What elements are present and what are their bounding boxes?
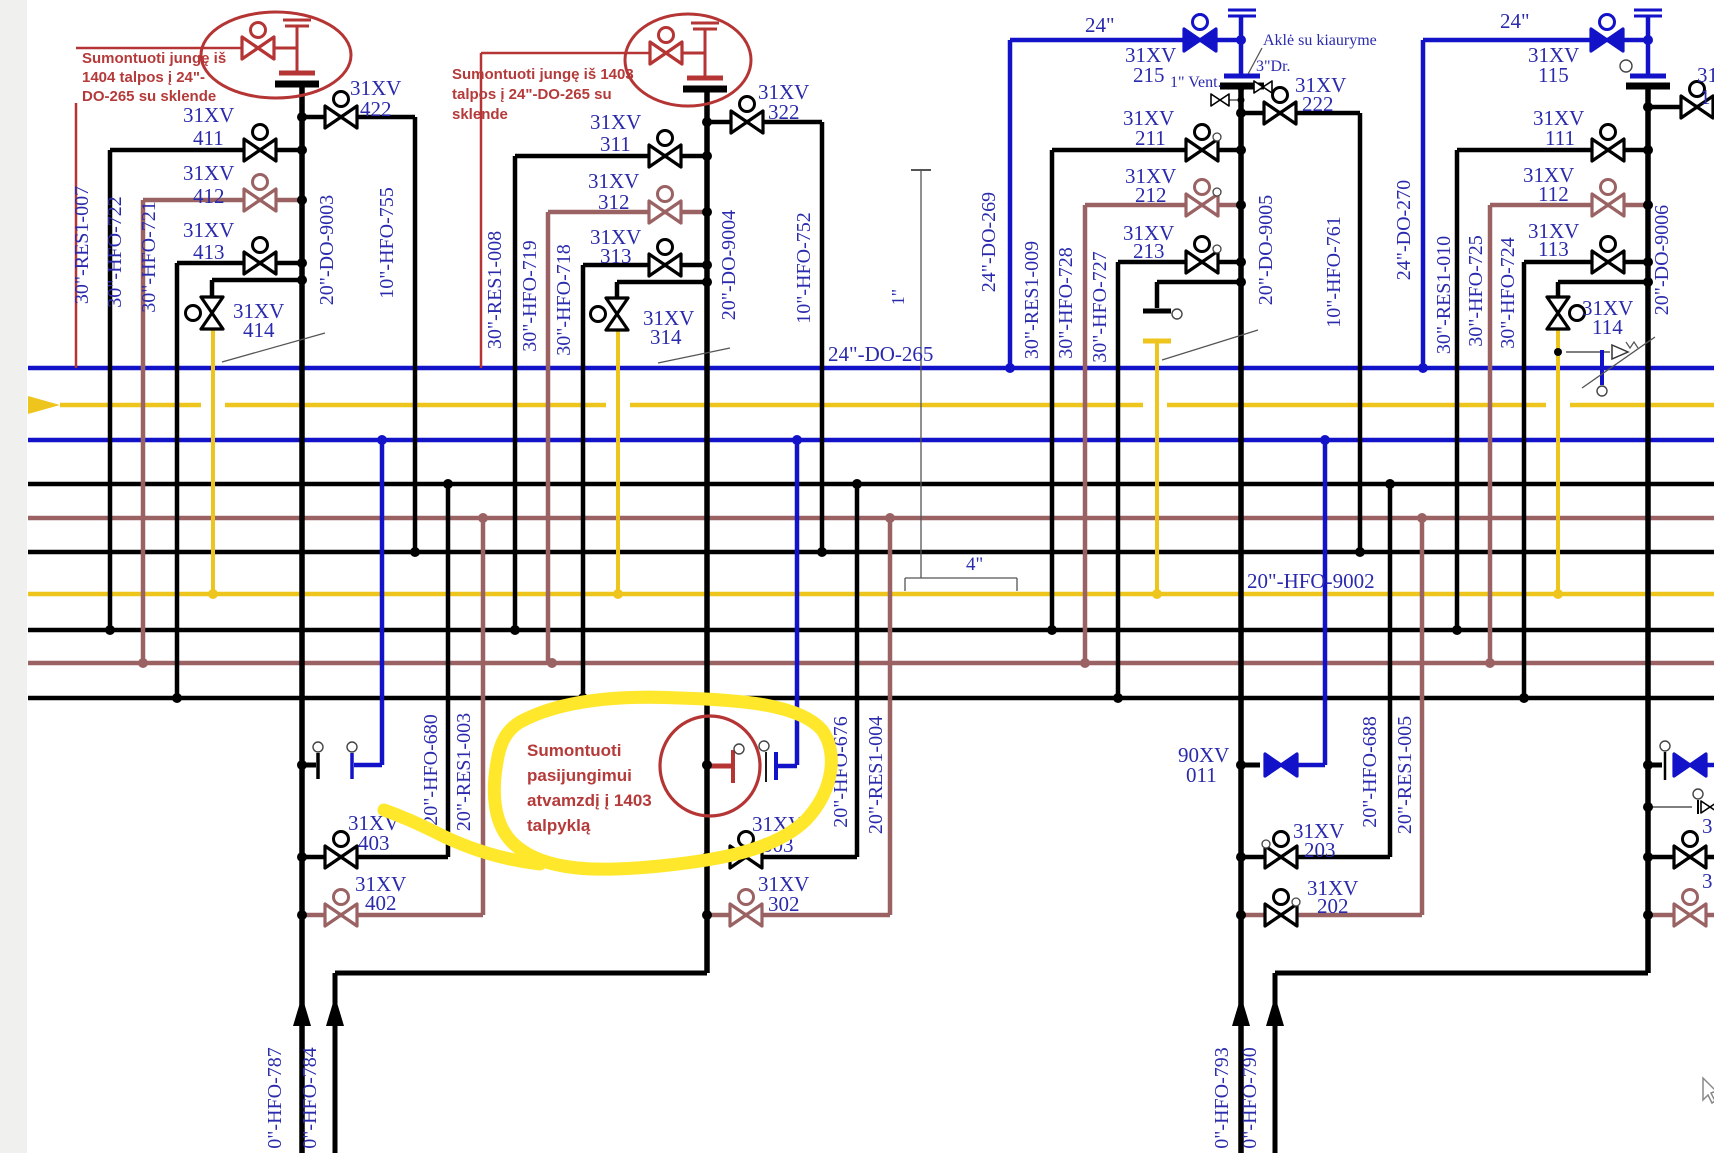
pipe-label-vertical: 0"-HFO-793	[1211, 1047, 1233, 1149]
pipe-junction-dot	[702, 260, 712, 270]
valve-icon	[1211, 94, 1229, 106]
valve-icon	[1592, 139, 1624, 161]
pid-drawing-canvas: 24"-DO-26520"-HFO-900224"24"4"31XV41131X…	[0, 0, 1714, 1153]
vent-circle-icon	[1597, 386, 1607, 396]
valve-icon	[1186, 251, 1218, 273]
pipe-junction-dot	[1236, 200, 1246, 210]
valve-icon	[325, 106, 357, 128]
red-note-text: DO-265 su sklende	[82, 88, 216, 105]
pipe-label-vertical: 30"-RES1-009	[1021, 241, 1043, 359]
red-note-text: talpyklą	[527, 816, 591, 835]
valve-actuator-icon	[1195, 180, 1210, 195]
pipe-junction-dot	[852, 479, 862, 489]
pipe-junction-dot	[1554, 348, 1562, 356]
valve-icon	[650, 42, 682, 64]
pipe-label: 212	[1135, 183, 1167, 207]
pipe-junction-dot	[1113, 693, 1123, 703]
valve-actuator-icon	[334, 832, 349, 847]
pipe-junction-dot	[1047, 625, 1057, 635]
red-note-text: pasijungimui	[527, 766, 632, 785]
vent-circle-icon	[313, 742, 323, 752]
valve-icon	[649, 201, 681, 223]
pipe-junction-dot	[443, 479, 453, 489]
valve-actuator-icon	[1601, 125, 1616, 140]
pipe-label: 413	[193, 240, 225, 264]
red-note-text: Sumontuoti jungę iš	[82, 50, 226, 67]
pipe-label-vertical: 0"-HFO-790	[1239, 1047, 1261, 1149]
pipe-junction-dot	[1417, 513, 1427, 523]
vent-circle-icon	[1660, 741, 1670, 751]
pipe-label-vertical: 30"-HFO-722	[104, 196, 126, 308]
annotation-label: 3"Dr.	[1256, 58, 1291, 75]
limit-switch-icon	[1213, 245, 1221, 253]
valve-actuator-icon	[253, 125, 268, 140]
pipe-junction-dot	[1236, 910, 1246, 920]
pipe-junction-dot	[297, 760, 307, 770]
pipe-junction-dot	[297, 112, 307, 122]
valve-icon	[649, 145, 681, 167]
pipe-junction-dot	[1553, 589, 1563, 599]
pipe-junction-dot	[1238, 97, 1245, 104]
pipe-label-vertical: 10"-HFO-755	[376, 187, 398, 299]
pipe-label: 113	[1538, 237, 1569, 261]
pipe-label: 31XV	[183, 161, 234, 185]
valve-icon	[244, 189, 276, 211]
pipe-junction-dot	[613, 589, 623, 599]
pipe-label-vertical: 0"-HFO-784	[299, 1047, 321, 1149]
pipe-label: 213	[1133, 239, 1165, 263]
pipe-label: 1	[1700, 85, 1711, 109]
pipe-label-vertical: 30"-HFO-719	[519, 240, 541, 352]
pipe-junction-dot	[1519, 693, 1529, 703]
pipe-label: 422	[360, 97, 392, 121]
pipe-label: 202	[1317, 894, 1349, 918]
pipe-junction-dot	[702, 151, 712, 161]
flow-arrow-icon	[326, 996, 344, 1026]
pipe-junction-dot	[1005, 363, 1015, 373]
valve-icon	[1265, 846, 1297, 868]
valve-actuator-icon	[1601, 180, 1616, 195]
valve-icon	[1674, 904, 1706, 926]
flow-arrow-icon	[1266, 996, 1284, 1026]
limit-switch-icon	[1213, 188, 1221, 196]
pipe-junction-dot	[1236, 35, 1246, 45]
valve-actuator-icon	[740, 97, 755, 112]
valve-actuator-icon	[658, 131, 673, 146]
pipe-junction-dot	[410, 547, 420, 557]
annotation-label: 1" Vent.	[1170, 74, 1222, 91]
pipe-label: 24"-DO-265	[828, 342, 933, 366]
red-note-text: 1404 talpos į 24"-	[82, 69, 205, 86]
valve-actuator-icon	[1683, 890, 1698, 905]
pipe-label: 114	[1592, 315, 1623, 339]
pipe-junction-dot	[885, 513, 895, 523]
valve-icon	[325, 904, 357, 926]
pipe-junction-dot	[105, 625, 115, 635]
red-note-text: atvamzdį į 1403	[527, 791, 652, 810]
vent-circle-icon	[734, 744, 744, 754]
pipe-label-vertical: 20"-HFO-680	[420, 714, 442, 826]
pipe-junction-dot	[138, 658, 148, 668]
valve-actuator-icon	[251, 23, 266, 38]
pipe-junction-dot	[702, 277, 712, 287]
pipe-label: 115	[1538, 63, 1569, 87]
pipe-label-vertical: 20"-RES1-005	[1394, 716, 1416, 834]
pipe-label: 31XV	[1702, 869, 1714, 893]
pipe-label: 322	[768, 100, 800, 124]
pipe-label: 403	[358, 831, 390, 855]
pipe-junction-dot	[1485, 658, 1495, 668]
valve-icon	[730, 904, 762, 926]
valve-icon	[1186, 139, 1218, 161]
pipe-junction-dot	[1236, 852, 1246, 862]
vent-circle-icon	[759, 741, 769, 751]
valve-icon	[1674, 754, 1706, 776]
pipe-label-vertical: 20"-RES1-003	[453, 713, 475, 831]
valve-actuator-icon	[1600, 15, 1615, 30]
pipe-label-vertical: 20"-RES1-004	[865, 716, 887, 834]
annotation-label: Aklė su kiauryme	[1263, 32, 1377, 49]
pipe-junction-dot	[510, 625, 520, 635]
pipe-junction-dot	[1236, 257, 1246, 267]
pipe-label-vertical: 20"-DO-9004	[718, 210, 740, 320]
pipe-label-vertical: 30"-HFO-724	[1497, 237, 1519, 349]
pipe-label: 412	[193, 184, 225, 208]
pipe-label-vertical: 1"	[888, 289, 908, 305]
pipe-junction-dot	[1236, 108, 1246, 118]
pipe-label: 312	[598, 190, 630, 214]
vent-circle-icon	[1172, 309, 1182, 319]
valve-actuator-icon	[658, 187, 673, 202]
pid-diagram: 24"-DO-26520"-HFO-900224"24"4"31XV41131X…	[0, 0, 1714, 1153]
pipe-junction-dot	[297, 258, 307, 268]
pipe-label: 414	[243, 318, 275, 342]
pipe-junction-dot	[817, 547, 827, 557]
valve-actuator-icon	[1273, 88, 1288, 103]
pipe-junction-dot	[1236, 760, 1246, 770]
pipe-junction-dot	[1643, 852, 1653, 862]
pipe-junction-dot	[297, 852, 307, 862]
flow-arrow-icon	[293, 996, 311, 1026]
valve-icon	[1264, 102, 1296, 124]
pipe-junction-dot	[297, 275, 307, 285]
pipe-junction-dot	[297, 910, 307, 920]
valve-actuator-icon	[186, 306, 201, 321]
pipe-junction-dot	[377, 435, 387, 445]
pipe-junction-dot	[702, 207, 712, 217]
pipe-label-vertical: 20"-DO-9003	[316, 195, 338, 305]
pipe-junction-dot	[172, 693, 182, 703]
valve-actuator-icon	[739, 890, 754, 905]
vent-circle-icon	[347, 742, 357, 752]
pipe-label-vertical: 10"-HFO-761	[1323, 216, 1345, 328]
valve-icon	[1592, 251, 1624, 273]
valve-icon	[1592, 194, 1624, 216]
valve-actuator-icon	[659, 28, 674, 43]
red-note-text: talpos į 24"-DO-265 su	[452, 86, 612, 103]
pipe-junction-dot	[1643, 760, 1653, 770]
valve-actuator-icon	[658, 240, 673, 255]
pipe-label-vertical: 30"-RES1-010	[1433, 236, 1455, 354]
pipe-label: 211	[1135, 126, 1166, 150]
pipe-segment	[658, 348, 730, 363]
pipe-junction-dot	[702, 760, 712, 770]
pipe-label-vertical: 20"-DO-9005	[1255, 195, 1277, 305]
pipe-label-vertical: 24"-DO-270	[1393, 180, 1415, 280]
valve-icon	[1184, 29, 1216, 51]
valve-icon	[325, 846, 357, 868]
pipe-junction-dot	[297, 145, 307, 155]
pipe-label: 215	[1133, 63, 1165, 87]
pipe-label-vertical: 30"-HFO-718	[553, 244, 575, 356]
valve-icon	[242, 37, 274, 59]
pipe-segment	[1582, 337, 1655, 388]
valve-icon	[244, 139, 276, 161]
limit-switch-icon	[1262, 840, 1270, 848]
valve-icon	[1265, 754, 1297, 776]
pipe-junction-dot	[1418, 363, 1428, 373]
pipe-junction-dot	[1385, 479, 1395, 489]
pipe-label-vertical: 30"-HFO-728	[1055, 247, 1077, 359]
pipe-junction-dot	[1152, 589, 1162, 599]
valve-icon	[606, 298, 628, 330]
pipe-label: 203	[1304, 838, 1336, 862]
pipe-label: 112	[1538, 182, 1569, 206]
valve-icon	[1186, 194, 1218, 216]
pipe-label: 4"	[966, 554, 983, 575]
pipe-junction-dot	[1643, 910, 1653, 920]
pipe-junction-dot	[702, 910, 712, 920]
pipe-label-vertical: 10"-HFO-752	[793, 212, 815, 324]
pipe-label: 31XV	[590, 110, 641, 134]
vent-circle-icon	[1693, 789, 1703, 799]
pipe-junction-dot	[1643, 102, 1653, 112]
pipe-junction-dot	[1320, 435, 1330, 445]
pipe-label: 20"-HFO-9002	[1247, 569, 1375, 593]
pipe-label: 111	[1545, 126, 1575, 150]
pipe-junction-dot	[792, 435, 802, 445]
pipe-junction-dot	[208, 589, 218, 599]
pipe-junction-dot	[547, 658, 557, 668]
pipe-label: 31XV	[183, 103, 234, 127]
pipe-label-vertical: 30"-HFO-727	[1089, 251, 1111, 363]
vent-circle-icon	[1620, 60, 1632, 72]
valve-actuator-icon	[334, 890, 349, 905]
valve-actuator-icon	[1274, 832, 1289, 847]
pipe-label: 311	[600, 132, 631, 156]
valve-actuator-icon	[253, 238, 268, 253]
valve-icon	[731, 111, 763, 133]
pipe-label: 411	[193, 126, 224, 150]
pipe-junction-dot	[1238, 85, 1245, 92]
pipe-junction-dot	[478, 513, 488, 523]
pipe-label: 402	[365, 891, 397, 915]
valve-icon	[1674, 846, 1706, 868]
pipe-label: 011	[1186, 763, 1217, 787]
valve-icon	[1701, 801, 1714, 813]
valve-actuator-icon	[1683, 832, 1698, 847]
flow-arrow-icon	[28, 396, 60, 414]
pipe-label-vertical: 30"-HFO-725	[1465, 235, 1487, 347]
valve-icon	[244, 252, 276, 274]
valve-actuator-icon	[1193, 15, 1208, 30]
pipe-label: 314	[650, 325, 682, 349]
valve-icon	[1547, 297, 1569, 329]
valve-icon	[649, 254, 681, 276]
pipe-junction-dot	[1236, 145, 1246, 155]
pipe-label-vertical: 24"-DO-269	[978, 192, 1000, 292]
pipe-junction-dot	[702, 117, 712, 127]
pipe-label-vertical: 20"-HFO-688	[1359, 716, 1381, 828]
pipe-junction-dot	[1643, 145, 1653, 155]
pipe-label: 31XV	[1697, 63, 1714, 87]
pipe-junction-dot	[1236, 277, 1246, 287]
red-note-text: sklende	[452, 106, 508, 123]
pipe-label-vertical: 0"-HFO-787	[264, 1047, 286, 1149]
valve-actuator-icon	[1195, 125, 1210, 140]
pipe-label: 302	[768, 892, 800, 916]
valve-actuator-icon	[1601, 237, 1616, 252]
pipe-label: 31XV	[183, 218, 234, 242]
pipe-label-vertical: 30"-HFO-721	[138, 201, 160, 313]
relief-valve-spring-icon	[1626, 342, 1638, 348]
pipe-label: 24"	[1085, 13, 1115, 37]
pipe-label-vertical: 30"-RES1-007	[71, 186, 93, 304]
pipe-junction-dot	[1643, 35, 1653, 45]
valve-actuator-icon	[591, 307, 606, 322]
pipe-label: 313	[600, 244, 632, 268]
valve-actuator-icon	[1274, 890, 1289, 905]
pipe-junction-dot	[297, 195, 307, 205]
pipe-junction-dot	[1452, 625, 1462, 635]
limit-switch-icon	[1292, 898, 1300, 906]
pipe-label: 31XV	[1702, 814, 1714, 838]
pipe-junction-dot	[1355, 547, 1365, 557]
pipe-label: 24"	[1500, 9, 1530, 33]
valve-icon	[1591, 29, 1623, 51]
pipe-label: 222	[1302, 92, 1334, 116]
valve-actuator-icon	[334, 92, 349, 107]
mouse-cursor-icon	[1703, 1078, 1714, 1103]
pipe-label-vertical: 30"-RES1-008	[484, 231, 506, 349]
pipe-junction-dot	[1080, 658, 1090, 668]
flow-arrow-icon	[1232, 996, 1250, 1026]
valve-actuator-icon	[1195, 237, 1210, 252]
red-note-text: Sumontuoti jungę iš 1403	[452, 66, 634, 83]
pipe-label-vertical: 20"-DO-9006	[1651, 205, 1673, 315]
valve-actuator-icon	[253, 175, 268, 190]
red-note-text: Sumontuoti	[527, 741, 621, 760]
valve-icon	[201, 297, 223, 329]
pipe-junction-dot	[1643, 802, 1653, 812]
valve-icon	[1265, 904, 1297, 926]
limit-switch-icon	[1213, 133, 1221, 141]
